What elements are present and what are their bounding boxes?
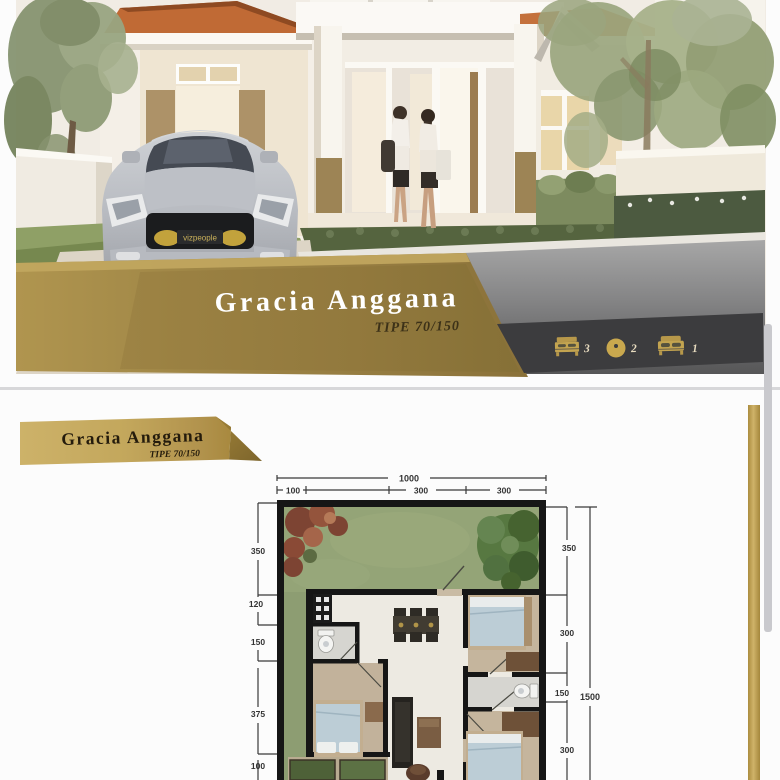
svg-text:300: 300 [414,486,428,496]
svg-text:300: 300 [560,628,574,638]
svg-text:1: 1 [692,343,698,355]
svg-text:100: 100 [286,486,300,496]
svg-text:300: 300 [497,486,511,496]
svg-text:TIPE 70/150: TIPE 70/150 [149,449,200,460]
svg-text:Gracia Anggana: Gracia Anggana [214,282,459,319]
svg-text:100: 100 [251,761,265,771]
svg-text:120: 120 [249,599,263,609]
svg-text:vizpeople: vizpeople [183,234,217,243]
svg-text:375: 375 [251,709,265,719]
svg-text:350: 350 [251,546,265,556]
svg-text:150: 150 [555,688,569,698]
svg-text:1000: 1000 [399,474,419,484]
svg-text:2: 2 [630,343,637,355]
svg-text:300: 300 [560,745,574,755]
svg-text:1500: 1500 [580,692,600,702]
svg-text:Gracia Anggana: Gracia Anggana [61,425,205,449]
svg-text:150: 150 [251,637,265,647]
svg-text:350: 350 [562,543,576,553]
svg-text:3: 3 [583,343,590,355]
svg-text:TIPE 70/150: TIPE 70/150 [374,319,460,336]
